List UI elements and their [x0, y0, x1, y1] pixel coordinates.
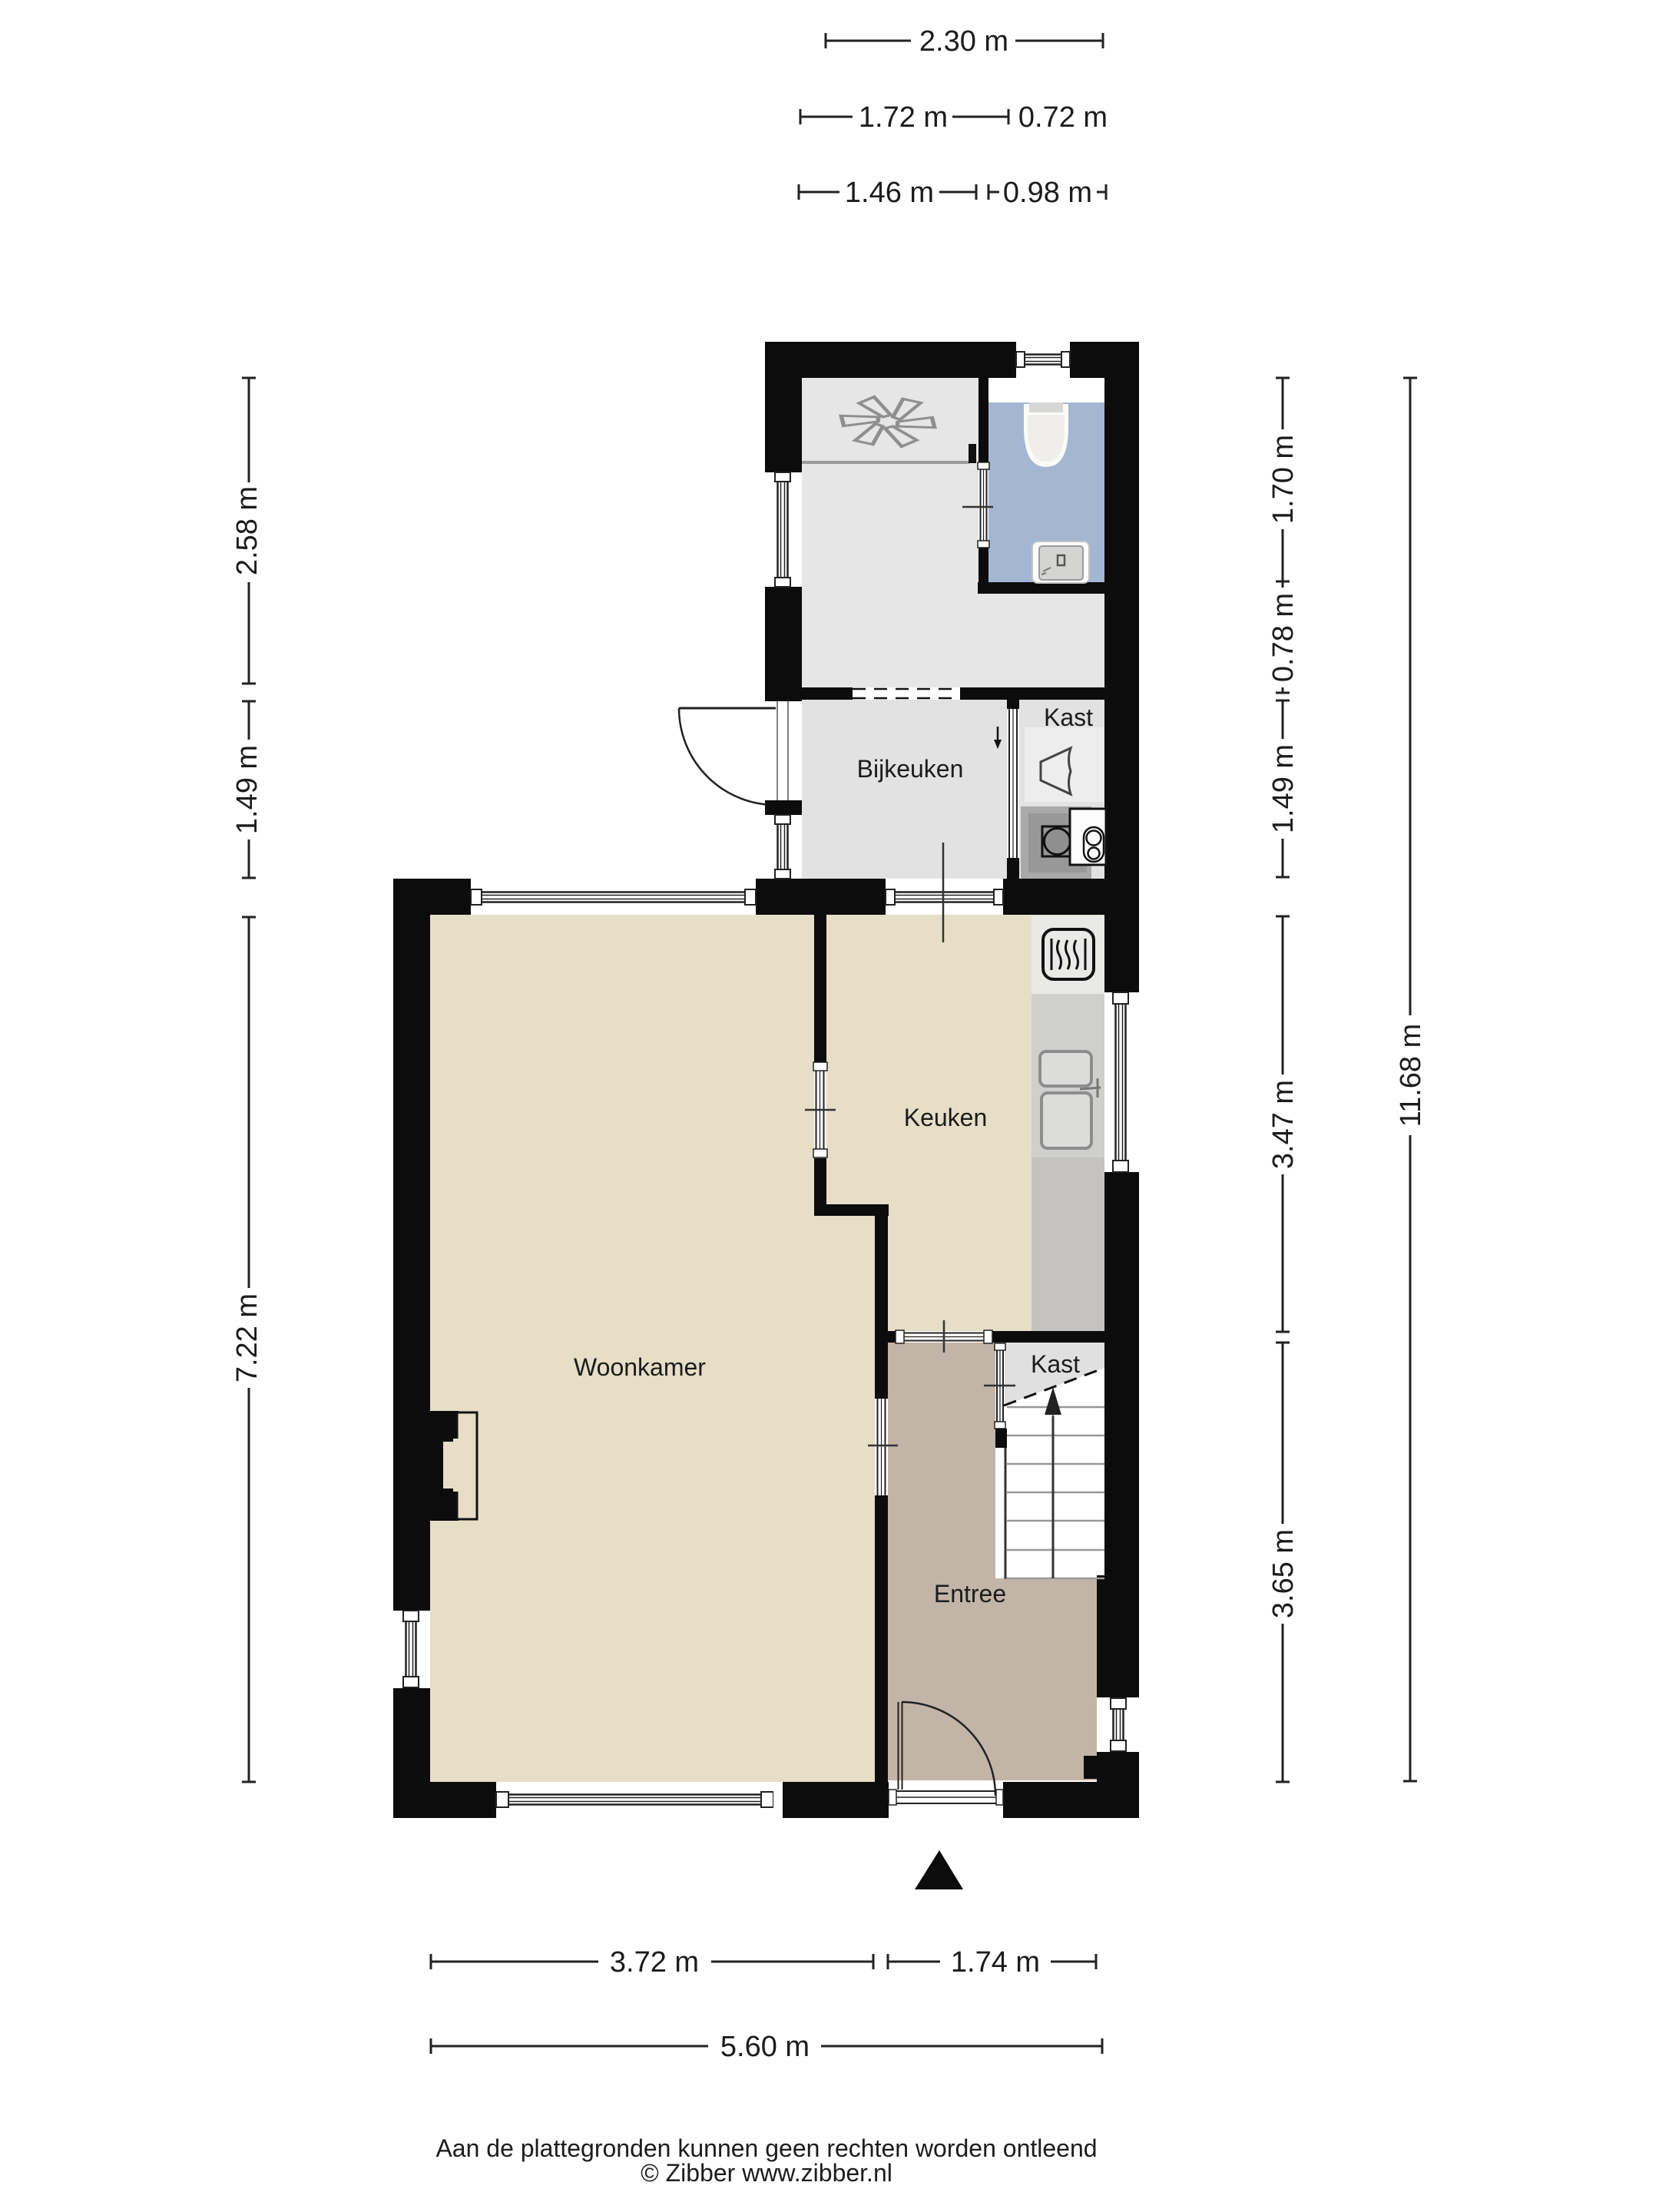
svg-text:7.22 m: 7.22 m [231, 1293, 263, 1382]
svg-text:1.72 m: 1.72 m [859, 101, 948, 134]
svg-text:0.72 m: 0.72 m [1018, 101, 1108, 134]
svg-text:0.98 m: 0.98 m [1003, 177, 1092, 209]
svg-text:1.70 m: 1.70 m [1267, 435, 1300, 524]
svg-text:1.49 m: 1.49 m [231, 745, 263, 834]
svg-text:0.78 m: 0.78 m [1267, 593, 1300, 682]
svg-text:3.65 m: 3.65 m [1267, 1529, 1300, 1618]
svg-text:Kast: Kast [1044, 704, 1093, 731]
svg-text:Bijkeuken: Bijkeuken [857, 755, 964, 783]
svg-text:3.47 m: 3.47 m [1267, 1080, 1300, 1169]
svg-text:Aan de plattegronden kunnen ge: Aan de plattegronden kunnen geen rechten… [435, 2134, 1097, 2162]
svg-text:11.68 m: 11.68 m [1395, 1024, 1427, 1127]
svg-text:© Zibber www.zibber.nl: © Zibber www.zibber.nl [641, 2159, 892, 2187]
svg-text:2.58 m: 2.58 m [231, 486, 263, 575]
svg-text:Woonkamer: Woonkamer [574, 1353, 706, 1381]
svg-text:Kast: Kast [1031, 1350, 1080, 1378]
svg-text:Entree: Entree [934, 1580, 1006, 1608]
svg-text:1.74 m: 1.74 m [951, 1946, 1040, 1979]
svg-text:5.60 m: 5.60 m [720, 2031, 810, 2063]
svg-text:1.46 m: 1.46 m [845, 177, 934, 209]
svg-text:Keuken: Keuken [904, 1104, 988, 1131]
svg-text:2.30 m: 2.30 m [919, 25, 1008, 58]
svg-text:3.72 m: 3.72 m [610, 1946, 699, 1979]
svg-text:1.49 m: 1.49 m [1267, 744, 1300, 833]
